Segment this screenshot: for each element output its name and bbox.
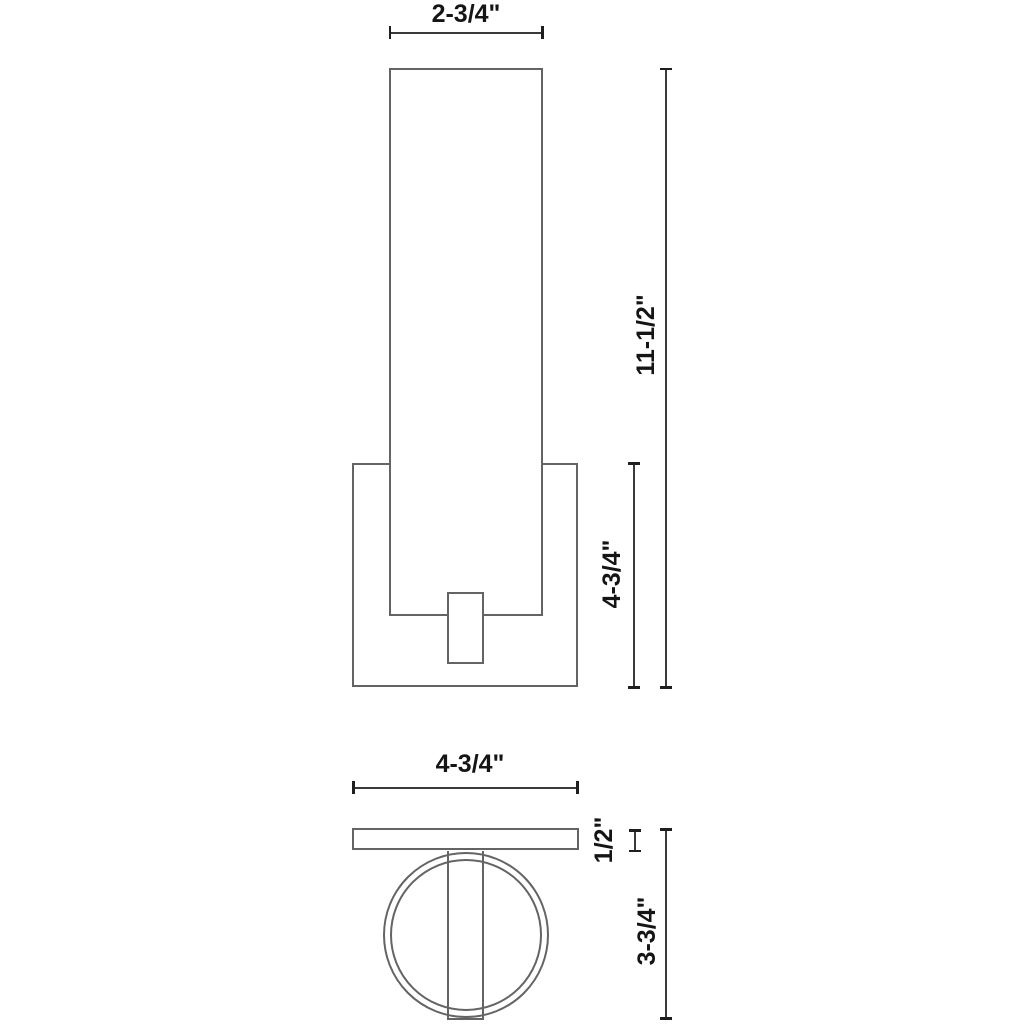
bottom-depth-tick-bottom — [660, 1017, 672, 1020]
front-backplate-height-tick-top — [628, 462, 640, 465]
front-backplate-height-line — [633, 463, 635, 687]
front-width-dimension-label: 2-3/4" — [366, 1, 566, 27]
front-overall-height-line — [665, 69, 667, 687]
bottom-thickness-tick-top — [629, 829, 641, 832]
front-width-tick-right — [541, 26, 544, 39]
front-width-tick-left — [389, 26, 392, 39]
front-backplate-height-label: 4-3/4" — [599, 514, 625, 634]
dimension-drawing: 2-3/4" 11-1/2" 4-3/4" 4-3/4" — [0, 0, 1024, 1024]
bottom-depth-line — [665, 829, 667, 1019]
bottom-width-dimension-label: 4-3/4" — [370, 751, 570, 777]
bottom-depth-tick-top — [660, 828, 672, 831]
bottom-width-tick-right — [576, 781, 579, 794]
bottom-width-dimension-line — [353, 787, 577, 789]
bottom-width-tick-left — [352, 781, 355, 794]
front-overall-height-tick-bottom — [660, 686, 672, 689]
front-mounting-arm — [447, 592, 484, 664]
bottom-arm-band — [447, 851, 484, 1020]
front-cylinder-shade — [389, 68, 543, 616]
front-backplate-height-tick-bottom — [628, 686, 640, 689]
bottom-depth-label: 3-3/4" — [634, 871, 660, 991]
bottom-thickness-line — [634, 830, 636, 851]
bottom-backplate-edge — [352, 828, 579, 850]
bottom-thickness-tick-bottom — [629, 850, 641, 853]
front-overall-height-label: 11-1/2" — [633, 265, 659, 405]
bottom-thickness-label: 1/2" — [591, 805, 617, 875]
front-overall-height-tick-top — [660, 68, 672, 71]
front-width-dimension-line — [390, 32, 542, 34]
